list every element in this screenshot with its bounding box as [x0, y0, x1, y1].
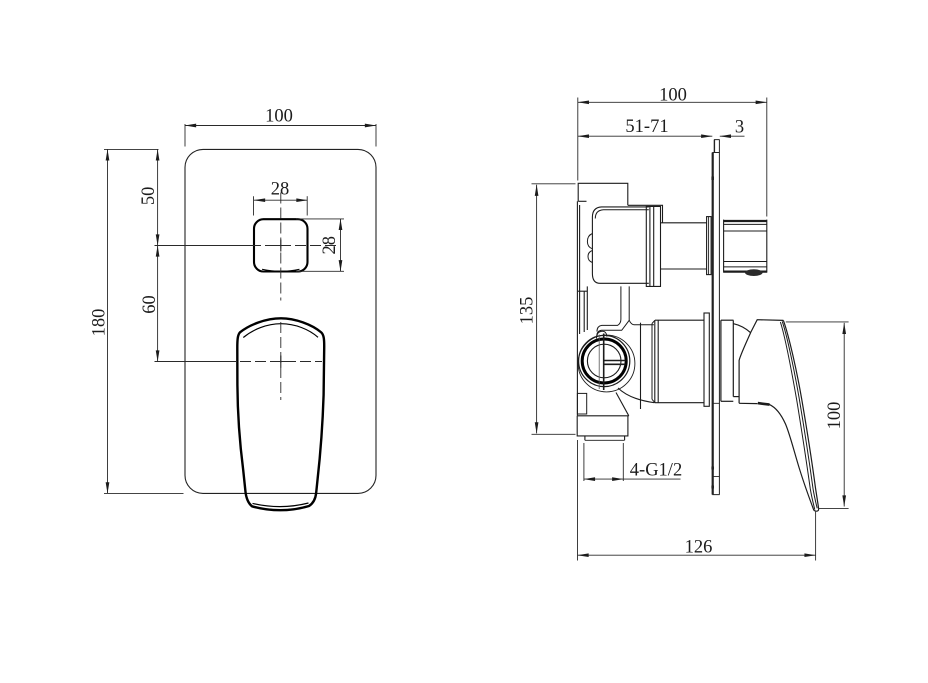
svg-text:28: 28 — [320, 236, 340, 255]
svg-text:126: 126 — [685, 537, 713, 557]
svg-text:100: 100 — [825, 402, 845, 430]
svg-text:60: 60 — [140, 295, 160, 314]
svg-text:50: 50 — [139, 187, 159, 206]
svg-text:3: 3 — [735, 118, 744, 138]
svg-text:28: 28 — [271, 180, 290, 200]
svg-text:51-71: 51-71 — [625, 117, 668, 137]
svg-text:135: 135 — [517, 297, 537, 325]
svg-text:100: 100 — [659, 85, 687, 105]
svg-text:4-G1/2: 4-G1/2 — [630, 460, 682, 480]
svg-text:180: 180 — [90, 309, 110, 337]
svg-text:100: 100 — [265, 107, 293, 127]
